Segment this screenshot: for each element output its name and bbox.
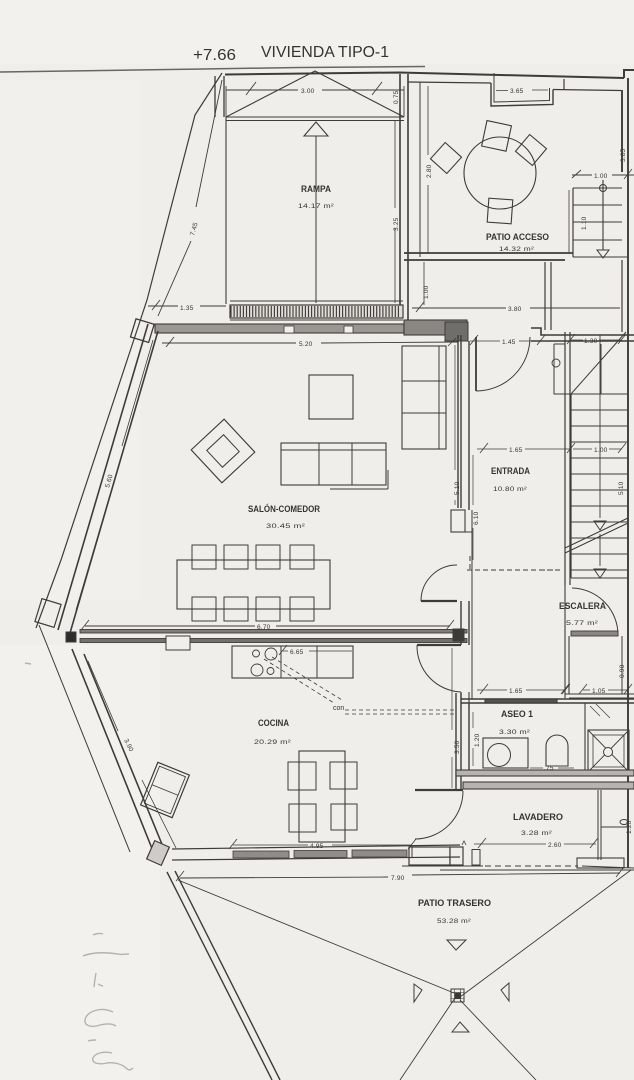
svg-text:1.00: 1.00 [594,173,608,180]
svg-text:5.10: 5.10 [454,481,461,495]
svg-text:1.65: 1.65 [509,447,523,454]
svg-text:0.75: 0.75 [393,90,400,104]
svg-text:5.10: 5.10 [618,481,625,495]
svg-text:2.60: 2.60 [548,842,562,849]
svg-text:ENTRADA: ENTRADA [491,466,530,477]
svg-text:3.30 m²: 3.30 m² [499,729,531,736]
svg-text:con: con [333,705,344,712]
svg-text:3.50: 3.50 [454,740,461,754]
svg-text:6.65: 6.65 [290,649,304,656]
svg-text:3.65: 3.65 [510,88,524,95]
svg-text:1.30: 1.30 [584,338,598,345]
svg-text:LAVADERO: LAVADERO [513,812,563,823]
svg-text:ASEO 1: ASEO 1 [501,709,534,720]
svg-text:53.28 m²: 53.28 m² [437,918,472,925]
svg-text:14.32 m²: 14.32 m² [499,246,535,253]
svg-text:1.45: 1.45 [502,339,516,346]
svg-text:6.10: 6.10 [473,511,480,525]
svg-text:7.90: 7.90 [391,875,405,882]
svg-text:RAMPA: RAMPA [301,184,331,195]
svg-text:PATIO TRASERO: PATIO TRASERO [418,898,491,909]
svg-text:14.17 m²: 14.17 m² [298,203,335,210]
svg-text:20.29 m²: 20.29 m² [254,739,292,746]
svg-text:COCINA: COCINA [258,718,289,729]
svg-text:3.25: 3.25 [393,217,400,231]
svg-text:1.10: 1.10 [581,216,588,230]
svg-text:ESCALERA: ESCALERA [559,601,606,612]
svg-text:1.35: 1.35 [180,305,194,312]
svg-text:3.00: 3.00 [301,88,315,95]
svg-text:3.28 m²: 3.28 m² [521,830,553,837]
svg-text:+7.66: +7.66 [193,47,236,64]
svg-text:5.77 m²: 5.77 m² [566,620,599,627]
svg-text:VIVIENDA TIPO-1: VIVIENDA TIPO-1 [261,44,389,61]
svg-text:PATIO ACCESO: PATIO ACCESO [486,232,549,243]
svg-text:10.80 m²: 10.80 m² [493,486,528,493]
svg-text:1.65: 1.65 [509,688,523,695]
svg-text:30.45 m²: 30.45 m² [266,523,306,530]
svg-text:1.20: 1.20 [474,733,481,747]
svg-text:SALÓN-COMEDOR: SALÓN-COMEDOR [248,503,320,515]
svg-text:1.00: 1.00 [594,447,608,454]
svg-text:3.80: 3.80 [508,306,522,313]
svg-text:1.05: 1.05 [592,688,606,695]
svg-text:1.00: 1.00 [423,285,430,299]
svg-text:5.20: 5.20 [299,341,313,348]
svg-text:0.90: 0.90 [619,664,626,678]
svg-text:2.80: 2.80 [426,164,433,178]
svg-text:.75: .75 [544,765,554,772]
